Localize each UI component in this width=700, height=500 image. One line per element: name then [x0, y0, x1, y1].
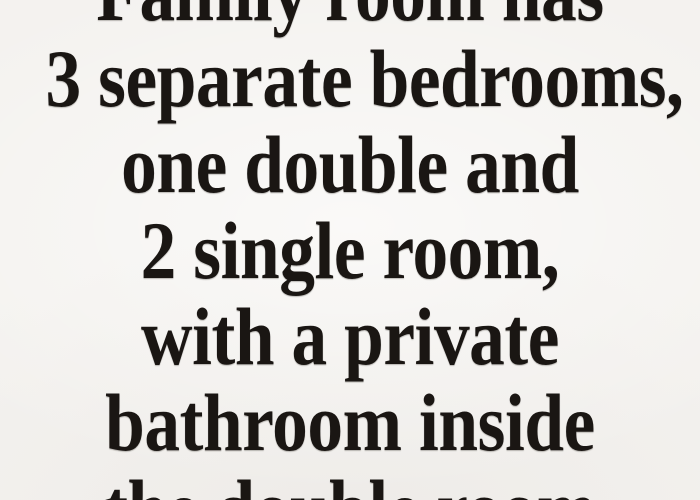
text-line-7: the double room [46, 466, 655, 500]
room-description-text: Family room has 3 separate bedrooms, one… [46, 0, 655, 500]
text-line-1: Family room has [46, 0, 655, 36]
text-line-2: 3 separate bedrooms, [46, 36, 655, 122]
text-image: Family room has 3 separate bedrooms, one… [0, 0, 700, 500]
text-line-4: 2 single room, [46, 208, 655, 294]
text-line-6: bathroom inside [46, 380, 655, 466]
text-line-3: one double and [46, 122, 655, 208]
text-line-5: with a private [46, 294, 655, 380]
